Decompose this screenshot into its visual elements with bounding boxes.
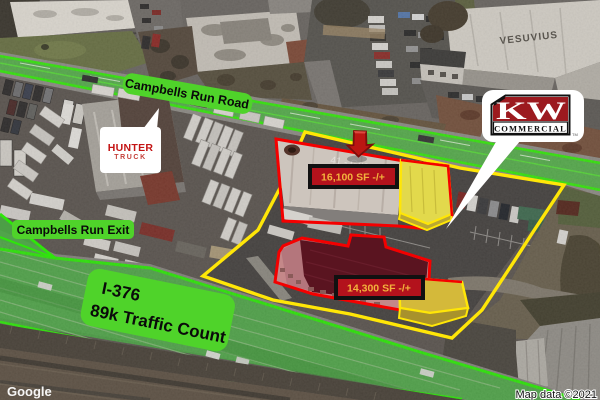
svg-text:Map data ©2021: Map data ©2021 <box>516 389 598 400</box>
svg-text:16,100 SF -/+: 16,100 SF -/+ <box>321 172 385 184</box>
svg-text:HUNTER: HUNTER <box>108 142 154 154</box>
svg-text:14,300 SF -/+: 14,300 SF -/+ <box>347 283 411 295</box>
svg-text:COMMERCIAL: COMMERCIAL <box>494 124 567 134</box>
svg-text:TM: TM <box>572 132 578 137</box>
svg-text:Google: Google <box>7 384 52 399</box>
svg-text:Campbells Run Exit: Campbells Run Exit <box>17 223 130 237</box>
svg-text:TRUCK: TRUCK <box>114 154 147 161</box>
svg-text:KW: KW <box>496 98 566 125</box>
